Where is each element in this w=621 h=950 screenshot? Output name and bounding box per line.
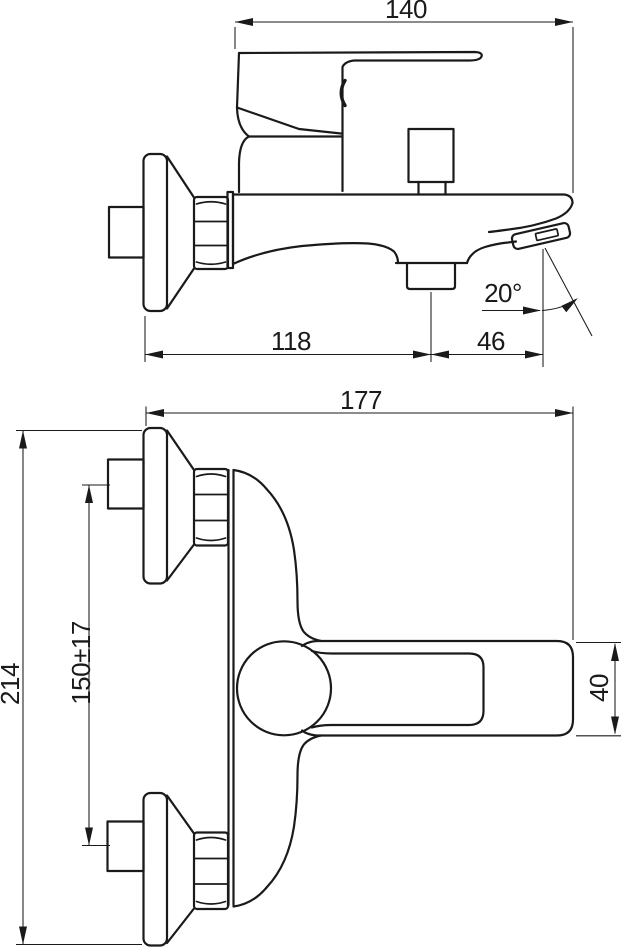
side-view: 140	[109, 0, 592, 367]
handle-knob	[237, 641, 331, 735]
hex-nut-facets	[194, 222, 228, 246]
arrowhead	[85, 828, 93, 846]
escutcheon-cone-bottom	[167, 796, 194, 944]
dim-label-118: 118	[271, 326, 311, 356]
arrowhead	[555, 18, 573, 26]
arrowhead	[19, 431, 27, 449]
handle-bar	[316, 641, 573, 736]
arrowhead	[145, 351, 163, 359]
dim-label-177: 177	[340, 385, 382, 415]
dim-label-214: 214	[0, 663, 25, 705]
arrowhead	[611, 643, 619, 661]
hex-nut-chamfer	[197, 474, 226, 541]
spout-outlet	[511, 222, 571, 250]
escutcheon	[144, 154, 168, 311]
front-view: 177 214 150±17	[0, 385, 621, 946]
dim-label-140: 140	[385, 0, 427, 24]
spout-face	[511, 222, 571, 250]
wall-pipe-top	[108, 460, 144, 509]
hex-nut-chamfer	[197, 838, 226, 905]
handle-inset	[312, 651, 484, 728]
dim-label-46: 46	[477, 326, 505, 356]
body-outline-lower	[234, 736, 322, 907]
arrowhead	[85, 485, 93, 503]
arrowhead	[413, 351, 431, 359]
aerator	[535, 229, 558, 241]
wall-pipe	[109, 207, 144, 258]
arrowhead	[555, 409, 573, 417]
body-underside	[233, 195, 398, 265]
technical-drawing-page: 140	[0, 0, 621, 950]
angle-reference-line	[545, 248, 592, 336]
dim-label-40: 40	[584, 674, 614, 702]
hex-nut-facets	[194, 859, 228, 885]
handle-bar-fillets	[302, 641, 316, 736]
escutcheon-bottom	[144, 793, 168, 946]
diverter-knob	[409, 129, 454, 182]
body-outline-upper	[234, 470, 322, 641]
bath-mixer-dimension-drawing: 140	[0, 0, 621, 950]
body-base-edge	[229, 470, 234, 905]
escutcheon-cone	[167, 157, 194, 309]
arrowhead	[19, 927, 27, 945]
hex-nut-top	[194, 469, 228, 546]
arrowhead	[431, 351, 449, 359]
arrowhead	[146, 409, 164, 417]
escutcheon-cone-top	[167, 431, 194, 581]
hex-nut-facets	[194, 495, 228, 521]
arrowhead	[525, 351, 543, 359]
hex-nut-chamfer	[197, 202, 226, 265]
escutcheon-top	[144, 428, 168, 584]
hex-nut-bottom	[194, 833, 228, 910]
arrowhead	[235, 18, 253, 26]
arrowhead	[611, 717, 619, 735]
wall-pipe-bottom	[108, 822, 144, 872]
cartridge-left	[239, 137, 249, 193]
body-top-edge	[233, 195, 573, 204]
dim-label-20deg: 20°	[484, 278, 522, 308]
spout-lower-curve	[467, 242, 516, 264]
bottom-outlet	[407, 263, 455, 289]
dim-label-150: 150±17	[66, 621, 96, 705]
hex-nut	[194, 197, 228, 269]
spout-upper-curve	[489, 203, 573, 232]
diverter-neck	[419, 182, 446, 195]
handle-front-edge	[237, 53, 239, 108]
arrowhead	[523, 307, 541, 315]
handle-underside	[237, 108, 341, 134]
